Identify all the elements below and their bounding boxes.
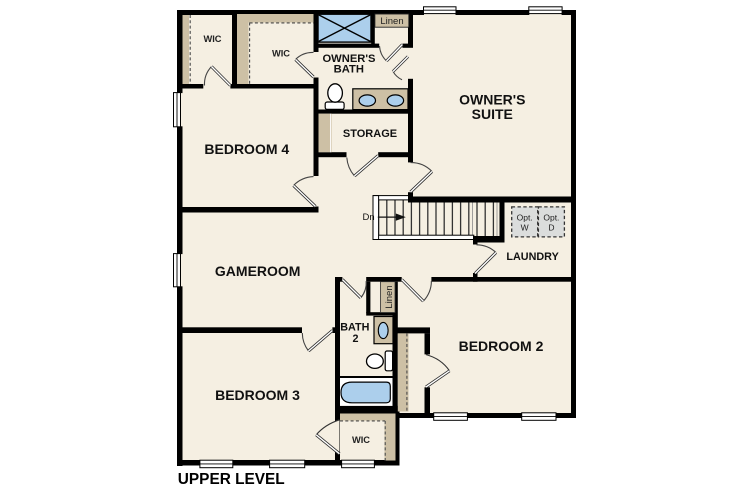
svg-text:UPPER LEVEL: UPPER LEVEL xyxy=(178,471,285,488)
svg-text:BEDROOM 3: BEDROOM 3 xyxy=(215,387,300,403)
svg-text:Opt.: Opt. xyxy=(543,212,559,222)
svg-text:BEDROOM 4: BEDROOM 4 xyxy=(204,141,289,157)
svg-text:LAUNDRY: LAUNDRY xyxy=(506,251,559,263)
svg-text:BEDROOM 2: BEDROOM 2 xyxy=(459,338,544,354)
svg-text:Linen: Linen xyxy=(380,16,403,27)
svg-text:WIC: WIC xyxy=(352,435,370,445)
svg-text:W: W xyxy=(521,222,529,232)
svg-text:2: 2 xyxy=(352,333,358,345)
svg-text:Dn: Dn xyxy=(363,212,375,223)
svg-text:WIC: WIC xyxy=(203,34,221,44)
svg-text:SUITE: SUITE xyxy=(472,106,513,122)
svg-text:Opt.: Opt. xyxy=(517,212,533,222)
svg-text:Linen: Linen xyxy=(384,285,395,308)
svg-text:STORAGE: STORAGE xyxy=(343,128,397,140)
svg-text:BATH: BATH xyxy=(340,322,369,334)
svg-text:GAMEROOM: GAMEROOM xyxy=(215,263,301,279)
svg-text:OWNER'S: OWNER'S xyxy=(459,92,525,108)
svg-text:BATH: BATH xyxy=(334,63,364,75)
svg-text:WIC: WIC xyxy=(272,49,290,59)
svg-text:D: D xyxy=(548,222,554,232)
